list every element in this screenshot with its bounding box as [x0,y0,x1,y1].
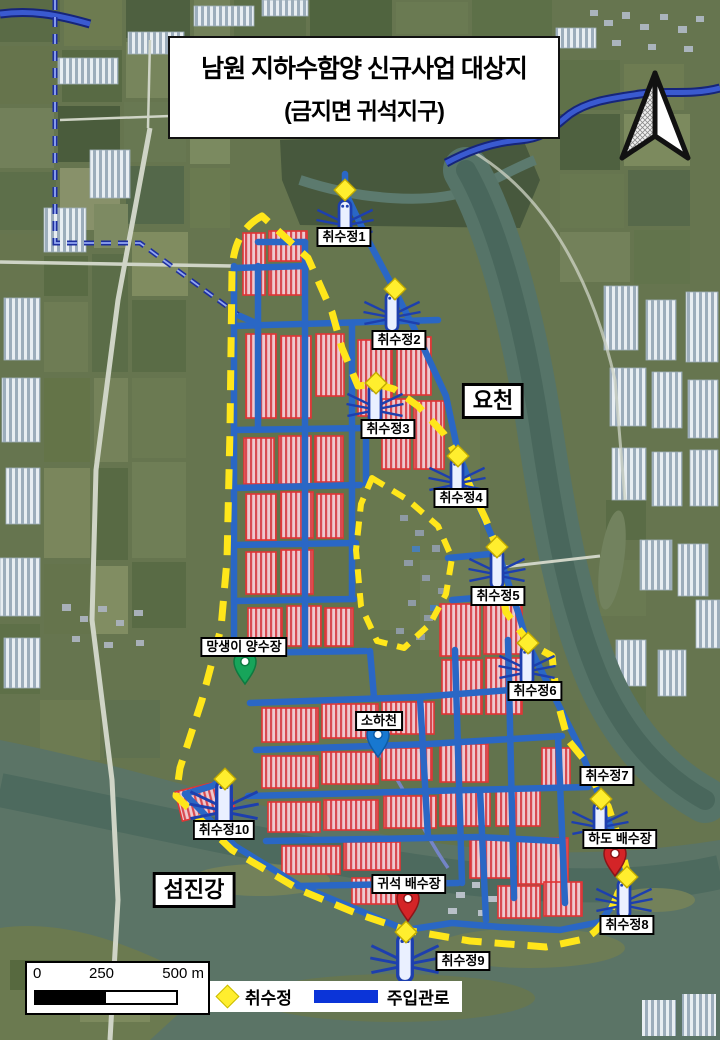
map-title-line1: 남원 지하수함양 신규사업 대상지 [201,49,527,85]
scale-bar: 0 250 500 m [25,961,210,1015]
map-title-box: 남원 지하수함양 신규사업 대상지 (금지면 귀석지구) [168,36,560,139]
well-label-5: 취수정5 [470,586,525,606]
well-label-6: 취수정6 [507,681,562,701]
gwiseok-label: 귀석 배수장 [371,874,446,894]
map-canvas: 남원 지하수함양 신규사업 대상지 (금지면 귀석지구) 취수정1 취수정2 취… [0,0,720,1040]
scale-tick-0: 0 [33,965,41,982]
well-label-9: 취수정9 [435,951,490,971]
map-title-line2: (금지면 귀석지구) [284,92,444,126]
scale-bar-segments [34,990,178,1005]
map-legend: 취수정 주입관로 [210,981,462,1012]
well-label-2: 취수정2 [371,330,426,350]
seomjingang-label: 섬진강 [153,872,236,908]
well-label-3: 취수정3 [360,419,415,439]
well-label-4: 취수정4 [433,488,488,508]
scale-tick-500: 500 m [162,965,204,982]
sohacheon-label: 소하천 [355,711,403,731]
legend-pipe-label: 주입관로 [387,984,450,1009]
well-label-1: 취수정1 [316,227,371,247]
hado-label: 하도 배수장 [582,829,657,849]
well-label-7: 취수정7 [579,766,634,786]
mangsaengi-label: 망생이 양수장 [200,637,287,657]
legend-well-label: 취수정 [245,984,292,1009]
well-label-8: 취수정8 [599,915,654,935]
legend-pipe-line-icon [314,990,378,1003]
well-label-10: 취수정10 [193,820,255,840]
scale-tick-250: 250 [89,965,114,982]
yocheon-label: 요천 [462,383,524,419]
satellite-map [0,0,720,1040]
legend-well-diamond-icon [215,984,239,1008]
